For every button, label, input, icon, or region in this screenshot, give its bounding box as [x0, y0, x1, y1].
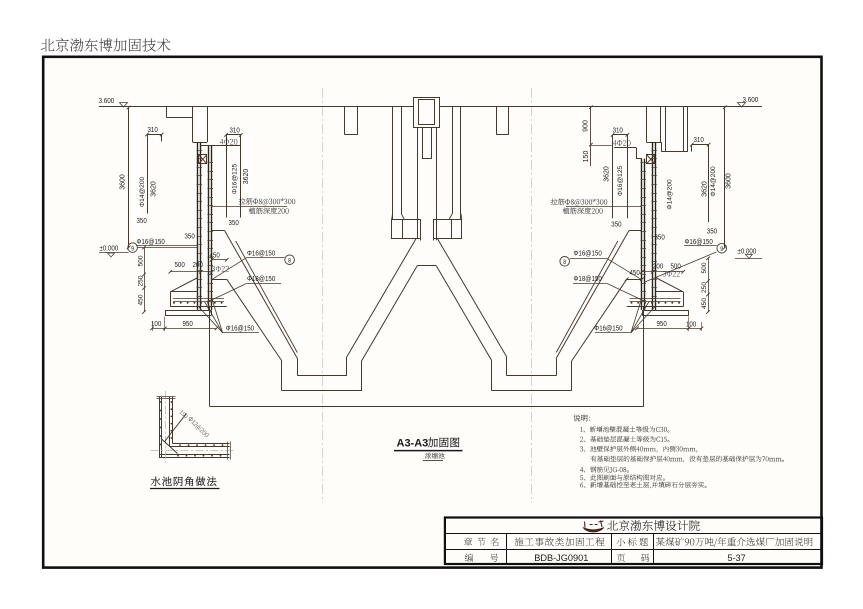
- svg-text:3620: 3620: [243, 169, 250, 185]
- svg-text:Φ16@150: Φ16@150: [226, 325, 255, 332]
- svg-text:BDB-JG0901: BDB-JG0901: [534, 553, 588, 563]
- svg-text:Φ16@150: Φ16@150: [247, 250, 276, 257]
- svg-text:3620: 3620: [604, 166, 611, 182]
- svg-text:350: 350: [137, 218, 148, 225]
- svg-text:Φ18@150: Φ18@150: [247, 276, 276, 283]
- svg-text:3.600: 3.600: [99, 98, 115, 105]
- svg-text:200: 200: [653, 263, 664, 270]
- svg-text:950: 950: [657, 321, 668, 328]
- svg-text:Φ14@200: Φ14@200: [139, 177, 146, 208]
- svg-text:3600: 3600: [119, 174, 126, 190]
- svg-text:3600: 3600: [726, 173, 733, 189]
- svg-text:450: 450: [210, 252, 221, 259]
- svg-text:450: 450: [701, 298, 708, 309]
- svg-text:9: 9: [131, 246, 134, 252]
- svg-text:250: 250: [701, 282, 708, 293]
- svg-text:350: 350: [611, 221, 622, 228]
- svg-text:500: 500: [137, 255, 144, 266]
- svg-text:250: 250: [137, 275, 144, 286]
- svg-text:Φ14@200: Φ14@200: [710, 166, 717, 197]
- svg-text:8: 8: [288, 258, 291, 264]
- svg-text:350: 350: [707, 228, 718, 235]
- svg-text:200: 200: [193, 261, 204, 268]
- svg-text:350: 350: [229, 220, 240, 227]
- svg-text:±0.000: ±0.000: [100, 245, 119, 252]
- svg-text:3620: 3620: [150, 181, 157, 197]
- svg-text:3620: 3620: [702, 181, 709, 197]
- svg-text:310: 310: [148, 127, 159, 134]
- svg-text:500: 500: [701, 262, 708, 273]
- svg-text:Φ16@150: Φ16@150: [574, 250, 603, 257]
- svg-text:310: 310: [694, 137, 705, 144]
- svg-text:Φ16@150: Φ16@150: [594, 325, 623, 332]
- svg-text:Φ16@125: Φ16@125: [232, 164, 239, 195]
- svg-text:310: 310: [613, 127, 624, 134]
- svg-text:450: 450: [137, 294, 144, 305]
- svg-text:A3-A3: A3-A3: [397, 438, 429, 450]
- svg-text:Φ18@150: Φ18@150: [574, 276, 603, 283]
- svg-text:350: 350: [185, 233, 196, 240]
- svg-text:Φ16@150: Φ16@150: [685, 238, 714, 245]
- svg-text:100: 100: [686, 321, 697, 328]
- svg-text:500: 500: [175, 261, 186, 268]
- svg-text:Φ16@125: Φ16@125: [617, 166, 624, 197]
- svg-text:950: 950: [183, 321, 194, 328]
- svg-text:8: 8: [563, 260, 566, 266]
- svg-text:350: 350: [655, 234, 666, 241]
- svg-text:Φ16@150: Φ16@150: [137, 238, 166, 245]
- svg-text:310: 310: [230, 127, 241, 134]
- svg-text:150: 150: [583, 151, 590, 163]
- svg-text:900: 900: [583, 120, 590, 132]
- svg-text:5-37: 5-37: [727, 553, 745, 563]
- svg-text:Φ14@200: Φ14@200: [667, 179, 674, 210]
- svg-text:500: 500: [671, 263, 682, 270]
- svg-text:9: 9: [720, 247, 723, 253]
